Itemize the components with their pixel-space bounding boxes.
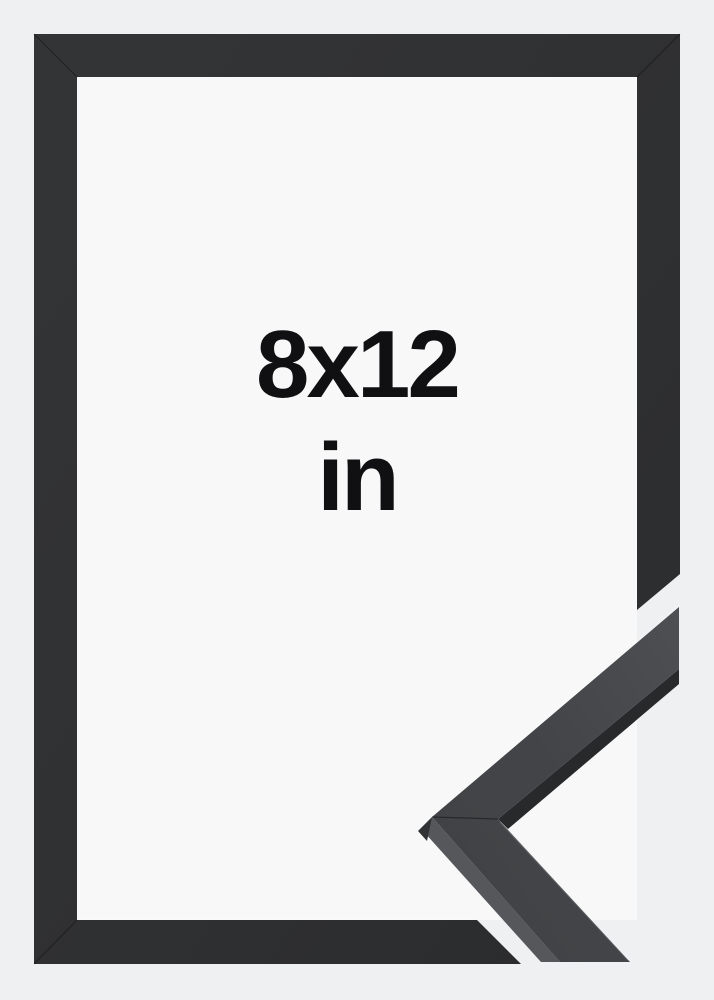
size-label-unit: in — [77, 421, 637, 534]
product-image: 8x12 in — [0, 0, 714, 1000]
size-label-dimensions: 8x12 — [77, 308, 637, 421]
size-label: 8x12 in — [77, 308, 637, 534]
